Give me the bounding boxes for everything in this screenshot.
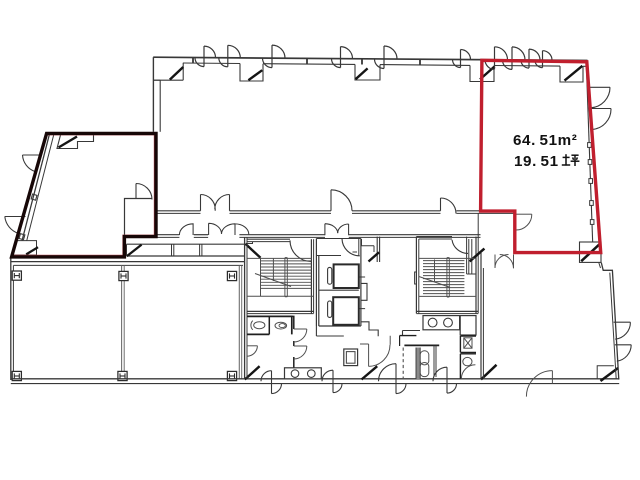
svg-text:19. 51: 19. 51 bbox=[514, 153, 559, 170]
svg-text:64. 51m²: 64. 51m² bbox=[513, 132, 577, 149]
